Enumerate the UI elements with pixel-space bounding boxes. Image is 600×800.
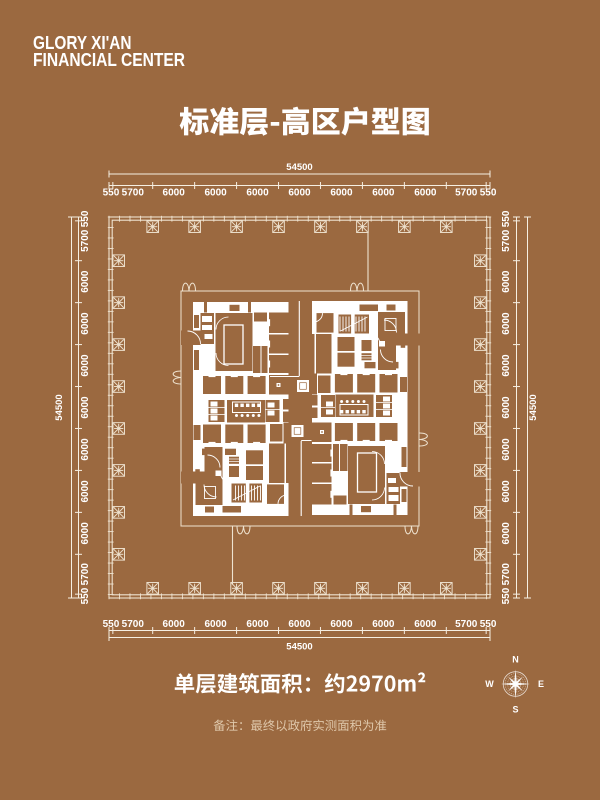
svg-text:6000: 6000 <box>330 619 353 630</box>
svg-text:6000: 6000 <box>80 438 91 461</box>
svg-text:6000: 6000 <box>414 188 437 199</box>
svg-text:6000: 6000 <box>80 312 91 335</box>
svg-text:6000: 6000 <box>246 188 269 199</box>
svg-text:6000: 6000 <box>80 396 91 419</box>
svg-text:6000: 6000 <box>80 270 91 293</box>
svg-text:S: S <box>512 705 518 715</box>
svg-text:6000: 6000 <box>80 354 91 377</box>
svg-text:5700: 5700 <box>455 619 478 630</box>
svg-text:6000: 6000 <box>288 188 311 199</box>
svg-text:6000: 6000 <box>372 188 395 199</box>
svg-text:5700: 5700 <box>455 188 478 199</box>
svg-text:54500: 54500 <box>286 642 312 653</box>
svg-text:550: 550 <box>501 587 512 604</box>
svg-text:6000: 6000 <box>501 480 512 503</box>
svg-text:E: E <box>538 679 544 689</box>
svg-text:6000: 6000 <box>246 619 269 630</box>
svg-text:FINANCIAL CENTER: FINANCIAL CENTER <box>33 50 185 70</box>
svg-text:550: 550 <box>480 619 497 630</box>
svg-text:54500: 54500 <box>528 394 539 420</box>
svg-text:550: 550 <box>80 210 91 227</box>
svg-text:6000: 6000 <box>288 619 311 630</box>
svg-text:6000: 6000 <box>163 619 186 630</box>
svg-text:6000: 6000 <box>501 396 512 419</box>
svg-text:6000: 6000 <box>501 522 512 545</box>
svg-text:550: 550 <box>480 188 497 199</box>
svg-text:5700: 5700 <box>501 229 512 252</box>
svg-text:6000: 6000 <box>501 270 512 293</box>
svg-text:6000: 6000 <box>80 522 91 545</box>
svg-text:550: 550 <box>80 587 91 604</box>
svg-text:6000: 6000 <box>501 354 512 377</box>
svg-text:W: W <box>485 679 494 689</box>
svg-text:6000: 6000 <box>501 438 512 461</box>
svg-text:5700: 5700 <box>122 619 145 630</box>
svg-text:6000: 6000 <box>501 312 512 335</box>
svg-text:6000: 6000 <box>372 619 395 630</box>
svg-text:N: N <box>512 655 519 665</box>
svg-text:54500: 54500 <box>286 162 312 173</box>
svg-text:6000: 6000 <box>204 619 227 630</box>
svg-text:550: 550 <box>103 619 120 630</box>
svg-text:550: 550 <box>501 210 512 227</box>
svg-text:550: 550 <box>103 188 120 199</box>
svg-text:6000: 6000 <box>414 619 437 630</box>
svg-text:5700: 5700 <box>80 229 91 252</box>
svg-text:6000: 6000 <box>330 188 353 199</box>
svg-text:6000: 6000 <box>163 188 186 199</box>
svg-text:54500: 54500 <box>54 394 65 420</box>
svg-text:5700: 5700 <box>501 563 512 586</box>
svg-text:6000: 6000 <box>80 480 91 503</box>
svg-text:5700: 5700 <box>80 563 91 586</box>
svg-text:6000: 6000 <box>204 188 227 199</box>
svg-text:5700: 5700 <box>122 188 145 199</box>
